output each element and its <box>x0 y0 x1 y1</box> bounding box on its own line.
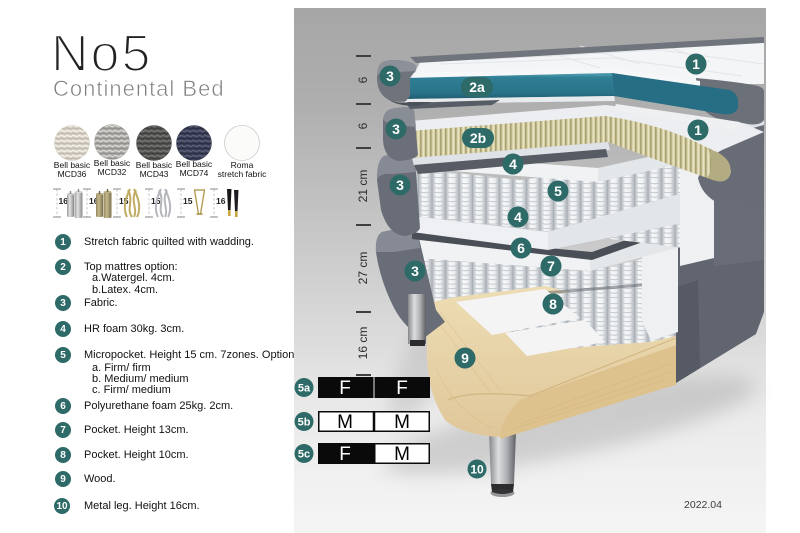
svg-text:10: 10 <box>470 463 484 477</box>
svg-text:M: M <box>394 412 410 433</box>
svg-text:5: 5 <box>554 183 562 199</box>
svg-text:2022.04: 2022.04 <box>684 499 722 511</box>
svg-text:F: F <box>339 378 351 399</box>
svg-text:9: 9 <box>461 350 469 366</box>
svg-text:4: 4 <box>514 209 522 225</box>
svg-text:8: 8 <box>549 296 557 312</box>
svg-text:5a: 5a <box>298 383 311 395</box>
svg-text:3: 3 <box>396 177 404 193</box>
svg-text:16 cm: 16 cm <box>356 327 370 360</box>
svg-text:6: 6 <box>517 240 525 256</box>
svg-text:M: M <box>337 412 353 433</box>
svg-text:3: 3 <box>392 121 400 137</box>
svg-text:3: 3 <box>411 263 419 279</box>
svg-text:2b: 2b <box>470 130 486 146</box>
svg-text:6: 6 <box>356 122 370 129</box>
svg-text:21 cm: 21 cm <box>356 170 370 203</box>
svg-text:4: 4 <box>509 156 517 172</box>
svg-text:M: M <box>394 444 410 465</box>
svg-text:5b: 5b <box>298 417 311 429</box>
svg-text:3: 3 <box>386 68 394 84</box>
svg-text:2a: 2a <box>469 79 485 95</box>
svg-text:5c: 5c <box>298 449 310 461</box>
svg-text:27 cm: 27 cm <box>356 252 370 285</box>
svg-text:F: F <box>396 378 408 399</box>
svg-text:1: 1 <box>692 56 700 72</box>
svg-text:1: 1 <box>694 122 702 138</box>
svg-text:7: 7 <box>547 258 555 274</box>
svg-text:F: F <box>339 444 351 465</box>
svg-text:6: 6 <box>356 76 370 83</box>
